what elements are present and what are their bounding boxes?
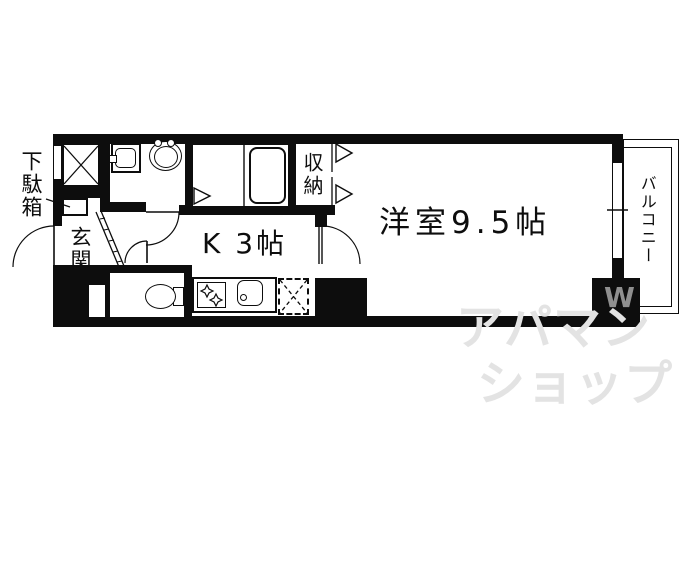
label-kitchen: K 3帖 xyxy=(202,229,287,258)
watermark-logo: W xyxy=(604,281,636,314)
storage-door-top-icon xyxy=(336,144,352,162)
stove-burner-right-icon xyxy=(210,294,222,306)
label-western-room: 洋室9.5帖 xyxy=(379,207,551,240)
label-entrance: 玄関 xyxy=(69,226,91,272)
entrance-step-hatching xyxy=(100,218,122,262)
label-storage-closet: 収納 xyxy=(301,152,322,198)
floor-plan-canvas: 下駄箱 玄関 K 3帖 洋室9.5帖 収納 バルコニー アパマン ショップ W xyxy=(0,0,690,575)
refrigerator-x-mark xyxy=(280,280,307,313)
room-door-leaf xyxy=(319,226,322,264)
storage-door-bottom-icon xyxy=(336,185,352,203)
bath-folding-door-icon xyxy=(194,188,210,204)
shoe-cabinet-leader-line xyxy=(46,199,70,207)
stove-burner-left-icon xyxy=(201,285,213,297)
shoe-closet-x-mark xyxy=(64,146,98,184)
toilet-door-swing-arc xyxy=(125,241,147,263)
entrance-door-swing-arc xyxy=(13,226,54,267)
washroom-door-swing-arc xyxy=(146,212,179,245)
room-door-swing-arc xyxy=(322,226,360,264)
label-shoe-cabinet: 下駄箱 xyxy=(20,150,42,219)
watermark-line2: ショップ xyxy=(477,344,673,414)
label-balcony: バルコニー xyxy=(638,175,655,265)
